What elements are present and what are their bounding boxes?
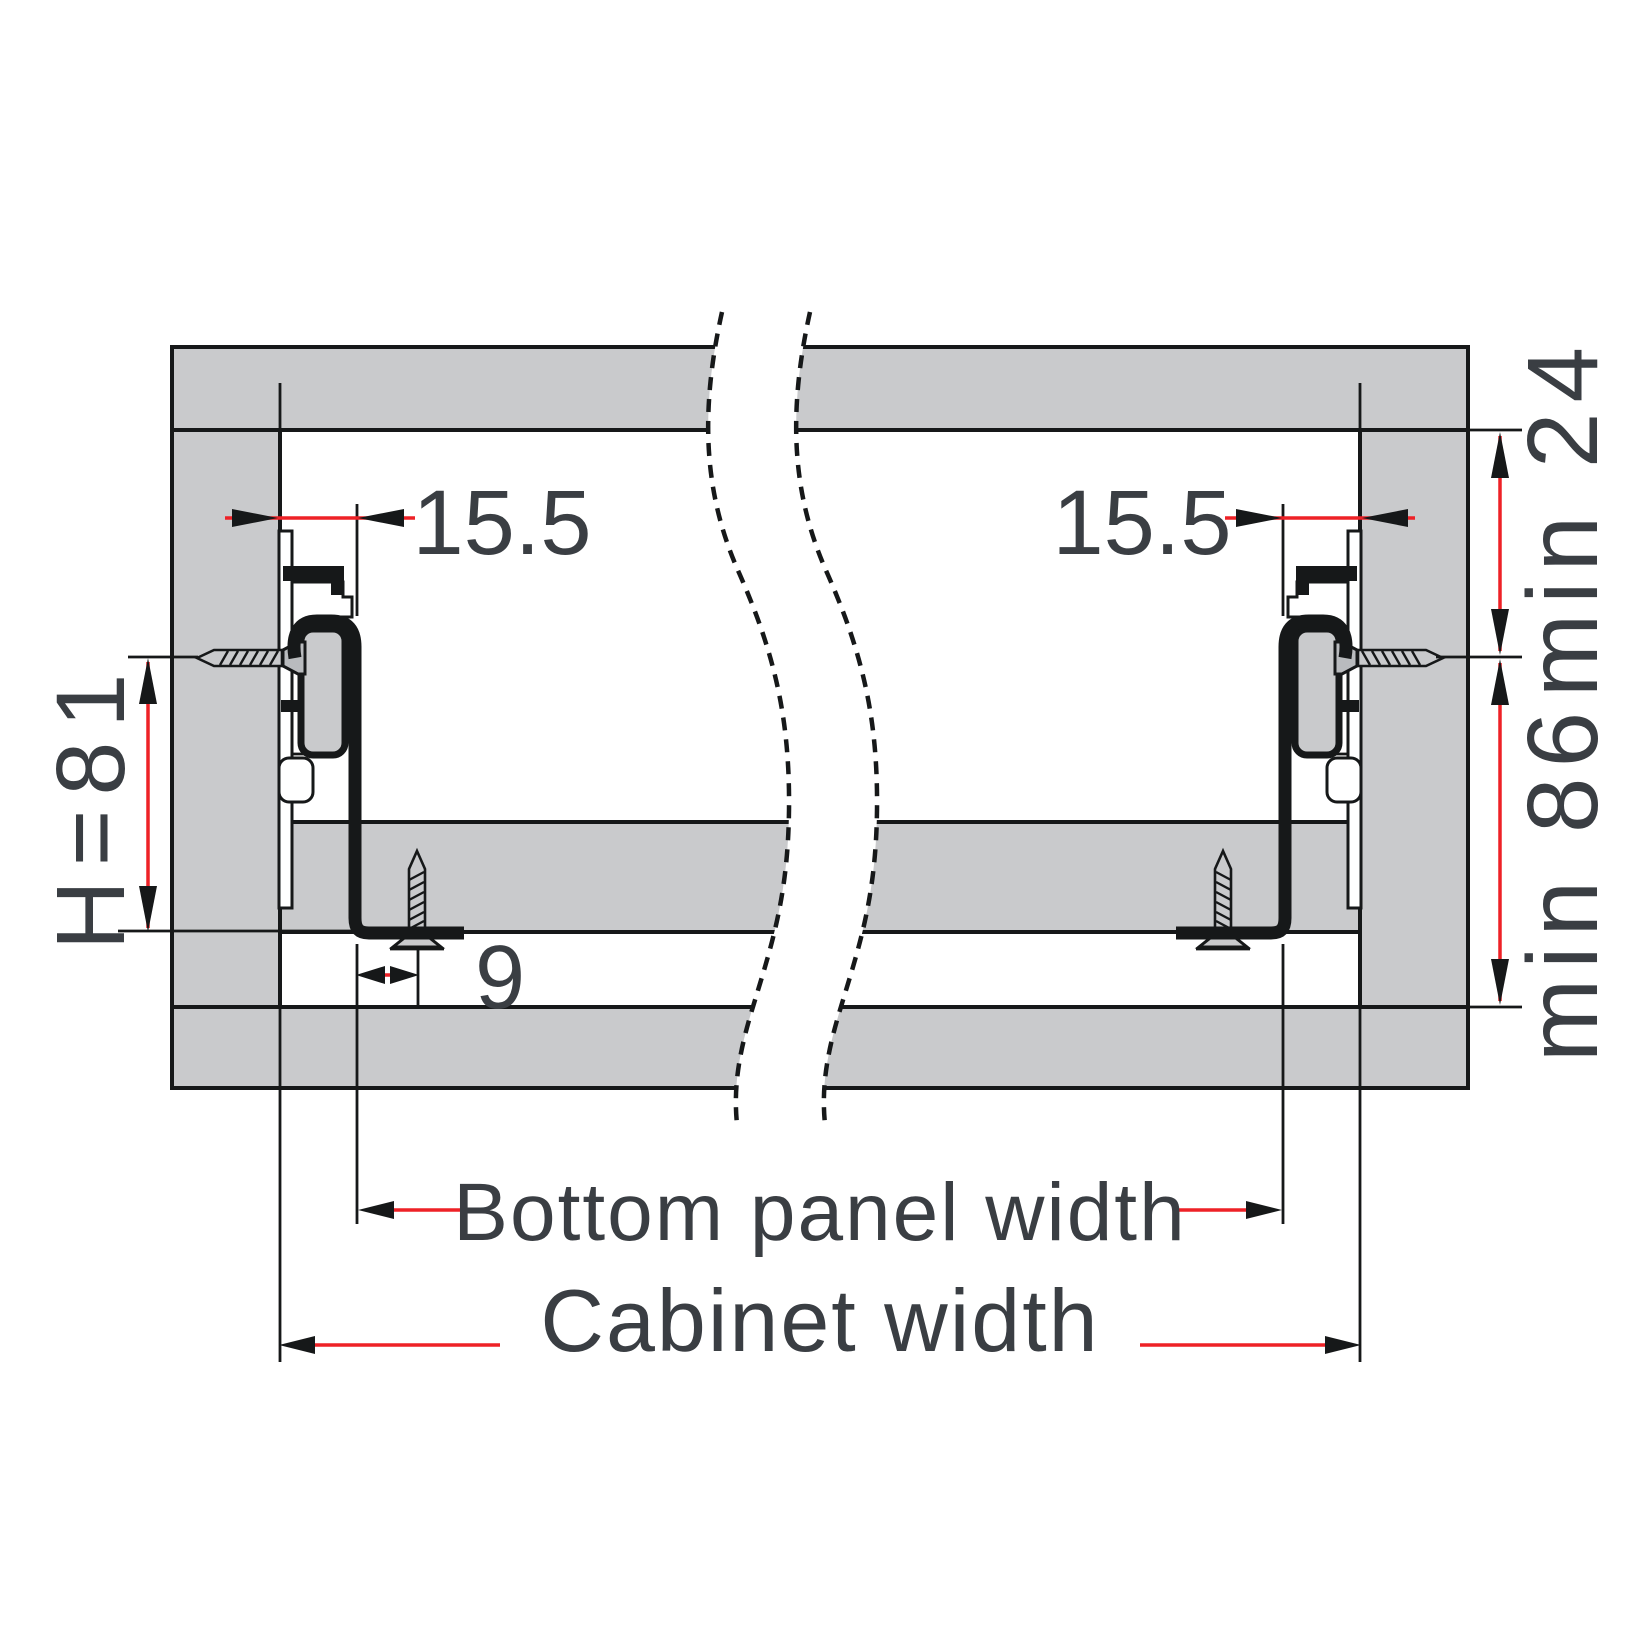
dim-label: Cabinet width <box>540 1271 1099 1370</box>
drawing-canvas: 15.5 15.5 H=81 9 min 24 <box>0 0 1652 1652</box>
arrowhead-icon <box>1236 509 1282 527</box>
slide-top-hook-step <box>331 581 344 595</box>
dim-label: 15.5 <box>412 472 591 574</box>
slide-lower-tab <box>279 758 313 802</box>
arrowhead-icon <box>279 1336 315 1354</box>
arrowhead-icon <box>356 966 385 984</box>
slide-roller <box>301 629 345 755</box>
arrowhead-icon <box>358 1201 394 1219</box>
top-rail <box>172 347 1468 430</box>
break-gap <box>708 312 877 1124</box>
dim-label: Bottom panel width <box>453 1167 1186 1258</box>
slide-top-hook <box>283 566 344 581</box>
arrowhead-icon <box>358 509 404 527</box>
dim-min-internal-height: min 86 <box>1468 659 1619 1062</box>
arrowhead-icon <box>1246 1201 1282 1219</box>
arrowhead-icon <box>390 966 419 984</box>
installation-diagram: 15.5 15.5 H=81 9 min 24 <box>0 0 1652 1652</box>
dim-label: 15.5 <box>1052 472 1231 574</box>
slide-back-plate <box>279 531 292 908</box>
dim-cabinet-width: Cabinet width <box>279 1271 1361 1370</box>
arrowhead-icon <box>1325 1336 1361 1354</box>
dim-label: min 24 <box>1507 337 1619 697</box>
dim-label: H=81 <box>36 660 145 951</box>
dim-label: min 86 <box>1507 702 1619 1062</box>
dim-label: 9 <box>475 928 525 1028</box>
